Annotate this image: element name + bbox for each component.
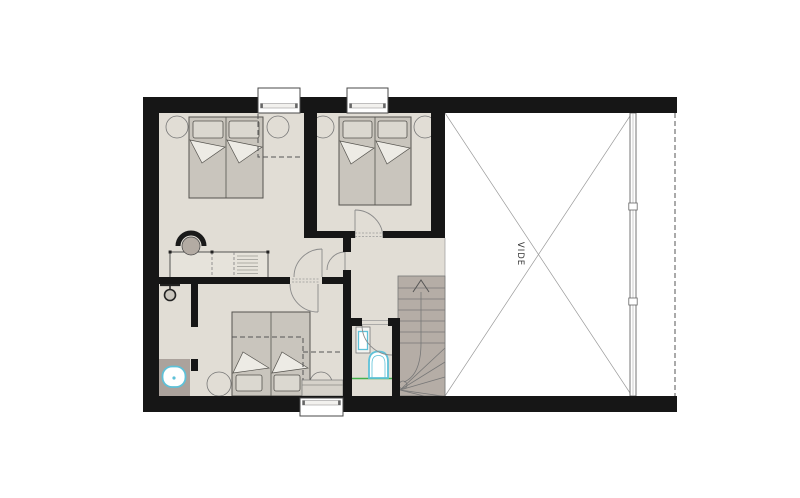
void-window — [629, 113, 637, 396]
wall-segment — [191, 284, 198, 327]
wall-segment — [143, 97, 159, 412]
wall-segment — [191, 359, 198, 371]
floor-plan-page: VIDE — [0, 0, 800, 498]
desk — [169, 251, 270, 279]
wc-sink — [356, 327, 370, 353]
wall-segment — [392, 326, 400, 396]
wall-segment — [159, 277, 290, 284]
toilet — [369, 352, 388, 379]
wall-segment — [383, 231, 431, 238]
floor-plan: VIDE — [0, 0, 800, 498]
wall-segment — [431, 113, 445, 238]
wall-segment — [304, 113, 317, 238]
wall-segment — [343, 270, 351, 284]
window-bottom — [300, 398, 343, 416]
wall-segment — [317, 231, 355, 238]
washbasin-drain — [172, 376, 175, 379]
window-bench — [302, 380, 343, 396]
wall-segment — [343, 318, 352, 396]
wall-segment — [388, 318, 400, 326]
wall-segment — [352, 318, 362, 326]
wall-segment — [143, 396, 677, 412]
wall-segment — [343, 238, 351, 252]
bed-double — [189, 117, 263, 198]
window-top-right — [347, 88, 388, 113]
void-label: VIDE — [515, 242, 525, 266]
bed-double — [339, 117, 411, 205]
wall-segment — [343, 284, 351, 318]
window-top-left — [258, 88, 300, 113]
bed-double — [232, 312, 310, 396]
staircase — [398, 276, 445, 396]
void-area: VIDE — [445, 113, 632, 396]
wall-segment — [143, 97, 677, 113]
